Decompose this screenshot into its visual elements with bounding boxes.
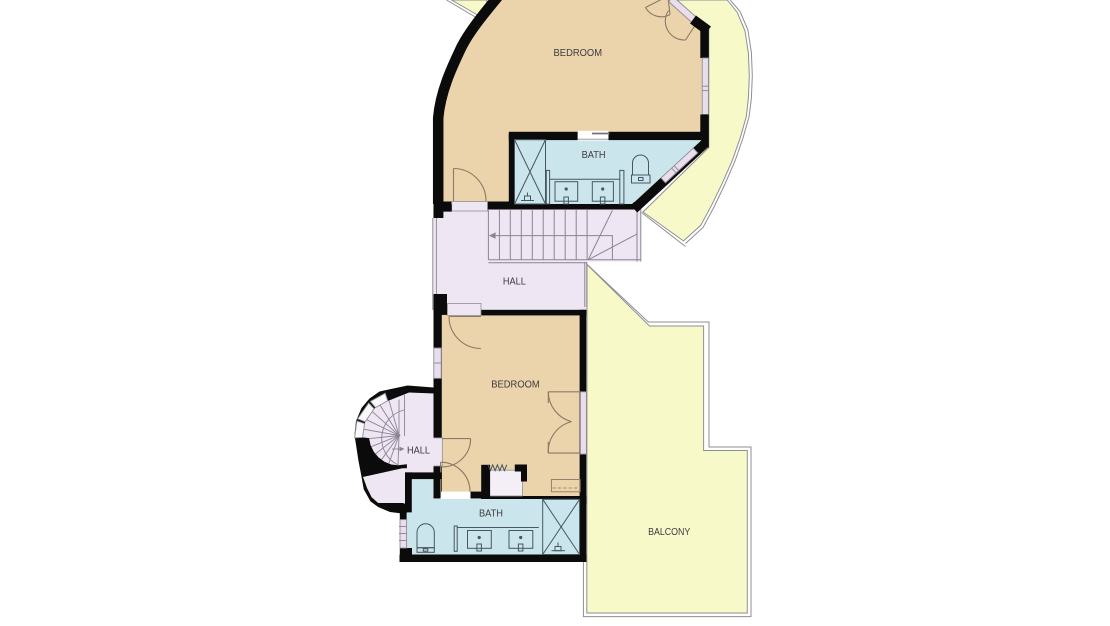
svg-text:BATH: BATH (582, 150, 606, 161)
svg-text:BATH: BATH (479, 509, 503, 520)
svg-text:BALCONY: BALCONY (648, 527, 690, 538)
svg-text:HALL: HALL (407, 446, 430, 457)
svg-text:BEDROOM: BEDROOM (491, 379, 540, 390)
svg-text:BEDROOM: BEDROOM (554, 48, 603, 59)
svg-text:HALL: HALL (503, 277, 526, 288)
